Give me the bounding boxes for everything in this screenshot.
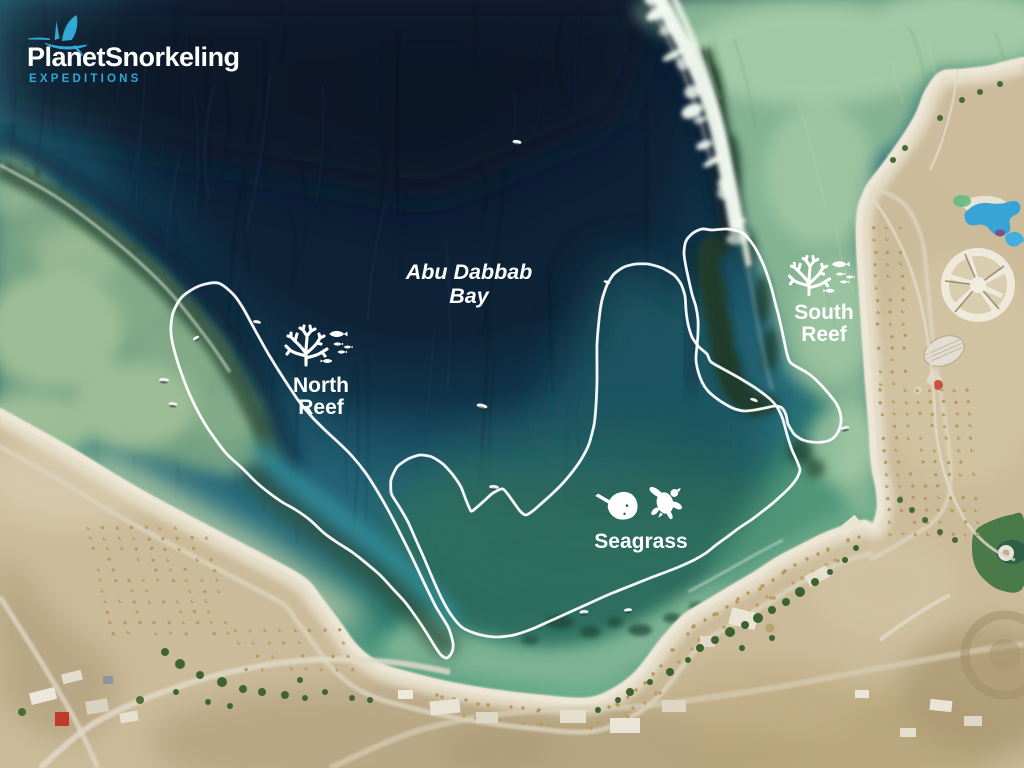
svg-text:PlanetSnorkeling: PlanetSnorkeling (27, 42, 240, 72)
svg-text:North: North (293, 374, 349, 397)
svg-text:South: South (794, 301, 853, 324)
svg-text:Seagrass: Seagrass (594, 530, 687, 553)
svg-text:Bay: Bay (449, 284, 489, 308)
svg-text:Reef: Reef (298, 396, 345, 419)
svg-text:EXPEDITIONS: EXPEDITIONS (29, 73, 142, 85)
svg-text:Abu Dabbab: Abu Dabbab (405, 260, 533, 284)
svg-text:Reef: Reef (801, 323, 848, 346)
